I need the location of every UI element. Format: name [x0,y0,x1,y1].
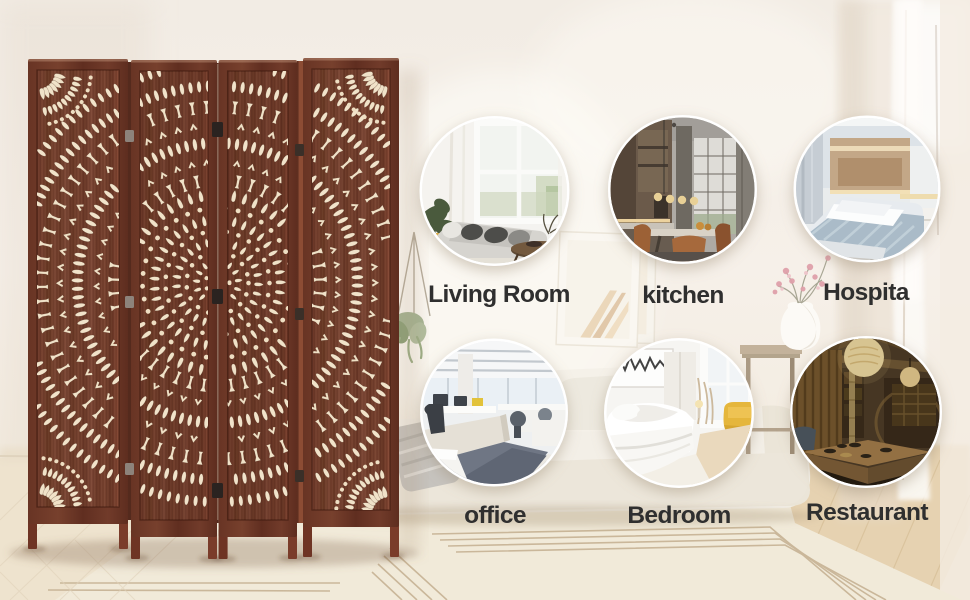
svg-text:Bedroom: Bedroom [627,502,730,529]
svg-text:Restaurant: Restaurant [806,499,928,526]
svg-text:kitchen: kitchen [642,282,724,309]
svg-text:Living Room: Living Room [428,281,570,308]
svg-text:office: office [464,502,526,529]
svg-text:Hospita: Hospita [823,279,910,306]
